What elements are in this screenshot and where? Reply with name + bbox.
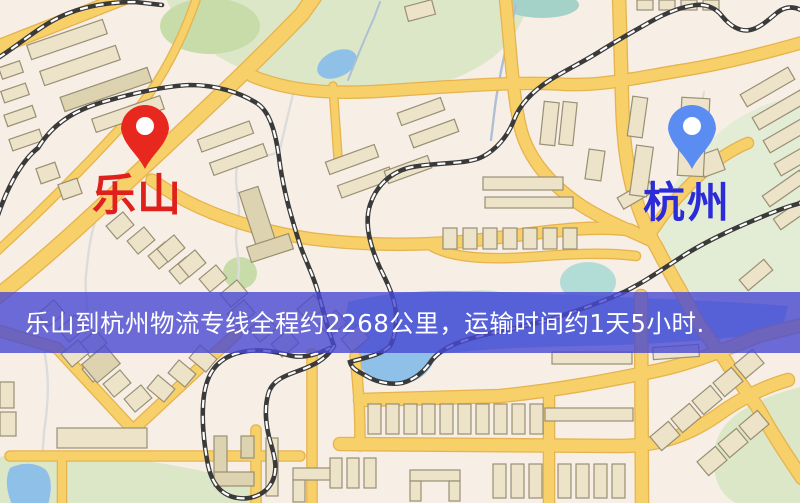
- info-banner: 乐山到杭州物流专线全程约2268公里，运输时间约1天5小时.: [0, 292, 800, 353]
- origin-label: 乐山: [92, 174, 182, 218]
- destination-label: 杭州: [643, 182, 731, 224]
- map-screenshot: 乐山 杭州 乐山到杭州物流专线全程约2268公里，运输时间约1天5小时.: [0, 0, 800, 503]
- map-canvas[interactable]: [0, 0, 800, 503]
- map-svg: [0, 0, 800, 503]
- banner-text: 乐山到杭州物流专线全程约2268公里，运输时间约1天5小时.: [0, 305, 705, 340]
